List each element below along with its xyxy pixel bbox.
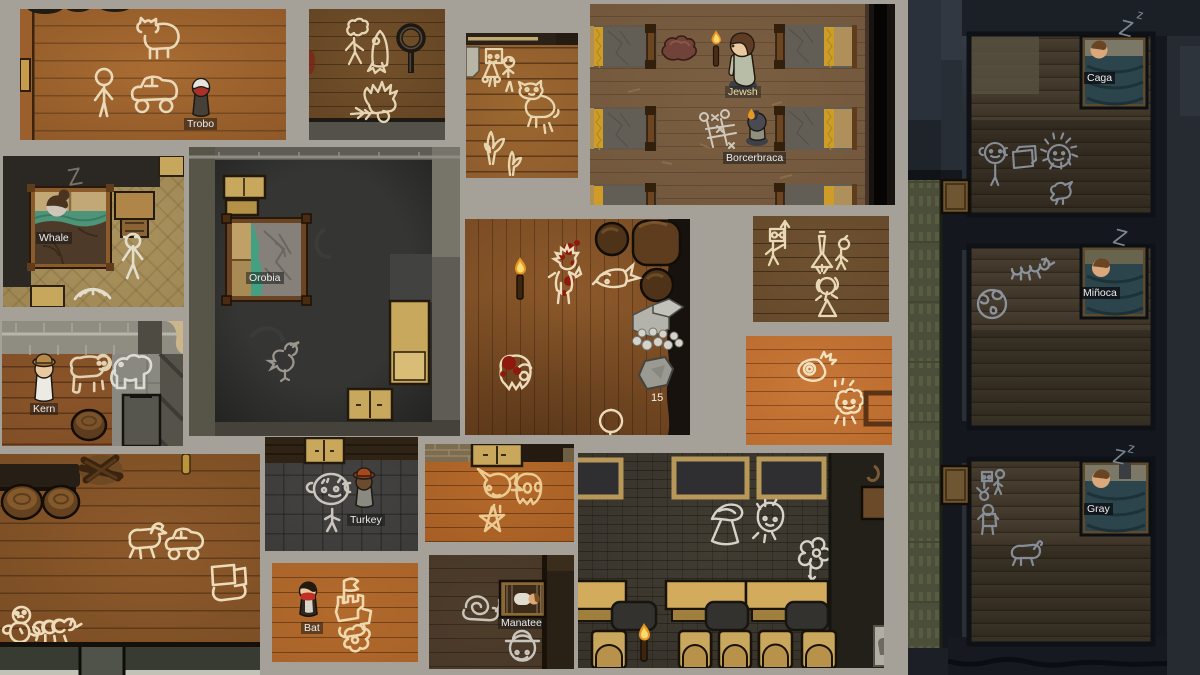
svg-text:15: 15: [651, 392, 663, 404]
